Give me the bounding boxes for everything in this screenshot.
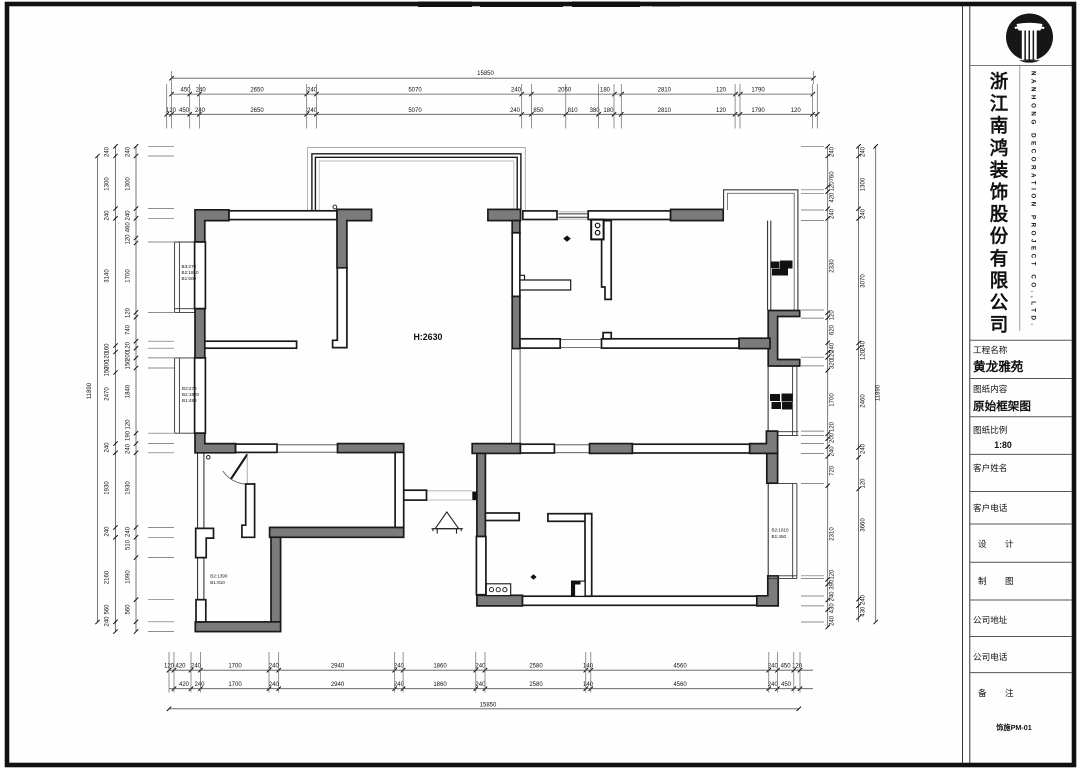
svg-text:B3:270: B3:270	[182, 386, 197, 391]
svg-text:南: 南	[990, 115, 1009, 136]
svg-text:H:2630: H:2630	[414, 332, 443, 342]
svg-text:240: 240	[269, 664, 280, 670]
svg-text:240: 240	[191, 664, 202, 670]
svg-text:120: 120	[126, 307, 132, 318]
svg-text:限: 限	[990, 270, 1009, 291]
svg-text:B2:1820: B2:1820	[182, 392, 200, 397]
svg-text:240: 240	[105, 146, 111, 157]
svg-text:620: 620	[830, 324, 836, 335]
svg-text:240: 240	[105, 616, 111, 627]
svg-text:B2:1810: B2:1810	[182, 270, 200, 275]
svg-text:120: 120	[830, 421, 836, 432]
svg-text:2940: 2940	[331, 664, 345, 670]
svg-text:430: 430	[830, 603, 836, 614]
svg-text:黄龙雅苑: 黄龙雅苑	[973, 359, 1024, 374]
svg-text:份: 份	[990, 226, 1009, 247]
svg-text:饰施PM-01: 饰施PM-01	[995, 723, 1032, 732]
svg-text:120: 120	[791, 108, 802, 114]
svg-text:120: 120	[126, 341, 132, 352]
svg-text:1840: 1840	[126, 384, 132, 398]
svg-text:2650: 2650	[250, 108, 264, 114]
svg-text:1930: 1930	[105, 481, 111, 495]
svg-text:240: 240	[830, 591, 836, 602]
svg-text:240: 240	[475, 664, 486, 670]
svg-text:760: 760	[830, 171, 836, 182]
svg-text:3140: 3140	[105, 269, 111, 283]
svg-text:240: 240	[126, 146, 132, 157]
svg-text:240: 240	[861, 146, 867, 157]
svg-text:工程名称: 工程名称	[973, 344, 1008, 355]
svg-text:240: 240	[510, 108, 521, 114]
svg-text:240: 240	[196, 88, 207, 94]
svg-text:240: 240	[126, 443, 132, 454]
svg-text:1790: 1790	[751, 108, 765, 114]
svg-text:120: 120	[830, 310, 836, 321]
svg-text:图纸比例: 图纸比例	[973, 424, 1007, 435]
svg-text:120: 120	[830, 569, 836, 580]
svg-text:120: 120	[126, 234, 132, 245]
svg-text:150: 150	[105, 366, 111, 377]
svg-text:4560: 4560	[673, 682, 687, 688]
svg-text:460: 460	[126, 222, 132, 233]
svg-text:2470: 2470	[105, 387, 111, 401]
svg-text:240: 240	[861, 443, 867, 454]
svg-text:160: 160	[105, 343, 111, 354]
svg-text:B1:490: B1:490	[182, 398, 197, 403]
svg-text:1700: 1700	[830, 393, 836, 407]
svg-text:1:80: 1:80	[994, 440, 1012, 450]
svg-text:1300: 1300	[105, 177, 111, 191]
svg-text:2330: 2330	[830, 259, 836, 273]
svg-text:备 注: 备 注	[978, 687, 1022, 698]
svg-text:2580: 2580	[529, 664, 543, 670]
svg-text:240: 240	[830, 615, 836, 626]
svg-text:850: 850	[533, 108, 544, 114]
svg-text:240: 240	[861, 340, 867, 351]
svg-text:B2:1390: B2:1390	[210, 574, 228, 579]
svg-text:240: 240	[830, 146, 836, 157]
svg-text:11890: 11890	[876, 384, 882, 401]
svg-text:200: 200	[830, 432, 836, 443]
svg-text:4560: 4560	[673, 664, 687, 670]
svg-text:原始框架图: 原始框架图	[973, 399, 1031, 413]
svg-text:2810: 2810	[658, 108, 672, 114]
svg-text:司: 司	[990, 314, 1009, 335]
svg-text:240: 240	[511, 88, 522, 94]
svg-text:1860: 1860	[433, 664, 447, 670]
svg-text:3660: 3660	[861, 518, 867, 532]
svg-text:240: 240	[105, 526, 111, 537]
svg-text:120: 120	[126, 419, 132, 430]
svg-text:B1:500: B1:500	[182, 276, 197, 281]
svg-text:B3:270: B3:270	[182, 264, 197, 269]
svg-text:240: 240	[105, 442, 111, 453]
svg-text:240: 240	[830, 446, 836, 457]
svg-text:1700: 1700	[126, 269, 132, 283]
svg-text:190: 190	[126, 430, 132, 441]
svg-text:饰: 饰	[990, 182, 1009, 203]
svg-text:510: 510	[126, 539, 132, 550]
svg-text:图纸内容: 图纸内容	[973, 383, 1008, 394]
svg-text:NANHONG DECORATION PROJECT CO.: NANHONG DECORATION PROJECT CO.,LTD.	[1030, 71, 1037, 329]
svg-text:有: 有	[990, 248, 1009, 269]
svg-text:240: 240	[830, 208, 836, 219]
svg-text:江: 江	[990, 93, 1009, 114]
svg-text:1930: 1930	[126, 481, 132, 495]
svg-text:120: 120	[716, 108, 727, 114]
svg-text:11890: 11890	[87, 382, 93, 399]
svg-text:B2:1810: B2:1810	[772, 528, 790, 533]
svg-text:5070: 5070	[408, 88, 422, 94]
svg-text:1790: 1790	[751, 88, 765, 94]
svg-text:鸿: 鸿	[990, 137, 1009, 158]
svg-text:2160: 2160	[105, 570, 111, 584]
svg-text:240: 240	[861, 594, 867, 605]
svg-text:公司地址: 公司地址	[973, 614, 1008, 625]
svg-text:120: 120	[830, 350, 836, 361]
svg-text:240: 240	[269, 682, 280, 688]
svg-text:公司电话: 公司电话	[973, 651, 1008, 662]
svg-text:430: 430	[861, 606, 867, 617]
svg-text:740: 740	[126, 324, 132, 335]
svg-text:140: 140	[583, 664, 594, 670]
svg-text:1860: 1860	[433, 682, 447, 688]
svg-text:180: 180	[600, 88, 611, 94]
svg-text:240: 240	[126, 526, 132, 537]
svg-text:150: 150	[126, 359, 132, 370]
svg-text:240: 240	[194, 682, 205, 688]
svg-text:1700: 1700	[228, 682, 242, 688]
svg-text:2580: 2580	[529, 682, 543, 688]
svg-text:240: 240	[768, 664, 779, 670]
svg-text:140: 140	[583, 682, 594, 688]
svg-text:设 计: 设 计	[978, 538, 1022, 549]
svg-text:420: 420	[830, 192, 836, 203]
svg-text:2810: 2810	[658, 88, 672, 94]
svg-text:120: 120	[861, 478, 867, 489]
svg-text:320: 320	[830, 358, 836, 369]
svg-text:15850: 15850	[480, 702, 497, 708]
svg-text:240: 240	[126, 210, 132, 221]
svg-text:450: 450	[179, 108, 190, 114]
svg-text:2310: 2310	[830, 527, 836, 541]
svg-text:120: 120	[830, 181, 836, 192]
svg-text:420: 420	[175, 664, 186, 670]
svg-text:浙: 浙	[990, 71, 1009, 92]
svg-text:装: 装	[989, 159, 1009, 180]
svg-text:560: 560	[105, 604, 111, 615]
svg-text:390: 390	[830, 579, 836, 590]
svg-text:240: 240	[475, 682, 486, 688]
svg-text:2460: 2460	[861, 394, 867, 408]
svg-text:2650: 2650	[250, 88, 264, 94]
svg-text:1300: 1300	[861, 177, 867, 191]
svg-text:560: 560	[126, 604, 132, 615]
svg-text:450: 450	[781, 664, 792, 670]
svg-text:200: 200	[126, 350, 132, 361]
svg-text:2940: 2940	[331, 682, 345, 688]
svg-text:450: 450	[781, 682, 792, 688]
svg-text:420: 420	[179, 682, 190, 688]
svg-text:5070: 5070	[408, 108, 422, 114]
svg-text:240: 240	[861, 208, 867, 219]
svg-text:720: 720	[830, 465, 836, 476]
svg-text:1700: 1700	[228, 664, 242, 670]
svg-text:客户姓名: 客户姓名	[973, 462, 1007, 473]
svg-text:240: 240	[768, 682, 779, 688]
svg-text:180: 180	[603, 108, 614, 114]
svg-text:公: 公	[990, 292, 1009, 313]
svg-text:客户电话: 客户电话	[973, 502, 1008, 513]
svg-text:15850: 15850	[477, 71, 494, 77]
svg-text:1090: 1090	[126, 570, 132, 584]
svg-text:240: 240	[105, 210, 111, 221]
svg-text:B1:910: B1:910	[210, 580, 225, 585]
svg-text:810: 810	[568, 108, 579, 114]
svg-text:3070: 3070	[861, 274, 867, 288]
svg-text:240: 240	[195, 108, 206, 114]
svg-text:120: 120	[861, 349, 867, 360]
svg-text:制 图: 制 图	[978, 575, 1022, 586]
svg-text:2050: 2050	[558, 88, 572, 94]
svg-text:120: 120	[716, 88, 727, 94]
svg-text:股: 股	[989, 204, 1009, 225]
svg-text:1300: 1300	[126, 177, 132, 191]
svg-text:B1:450: B1:450	[772, 534, 787, 539]
